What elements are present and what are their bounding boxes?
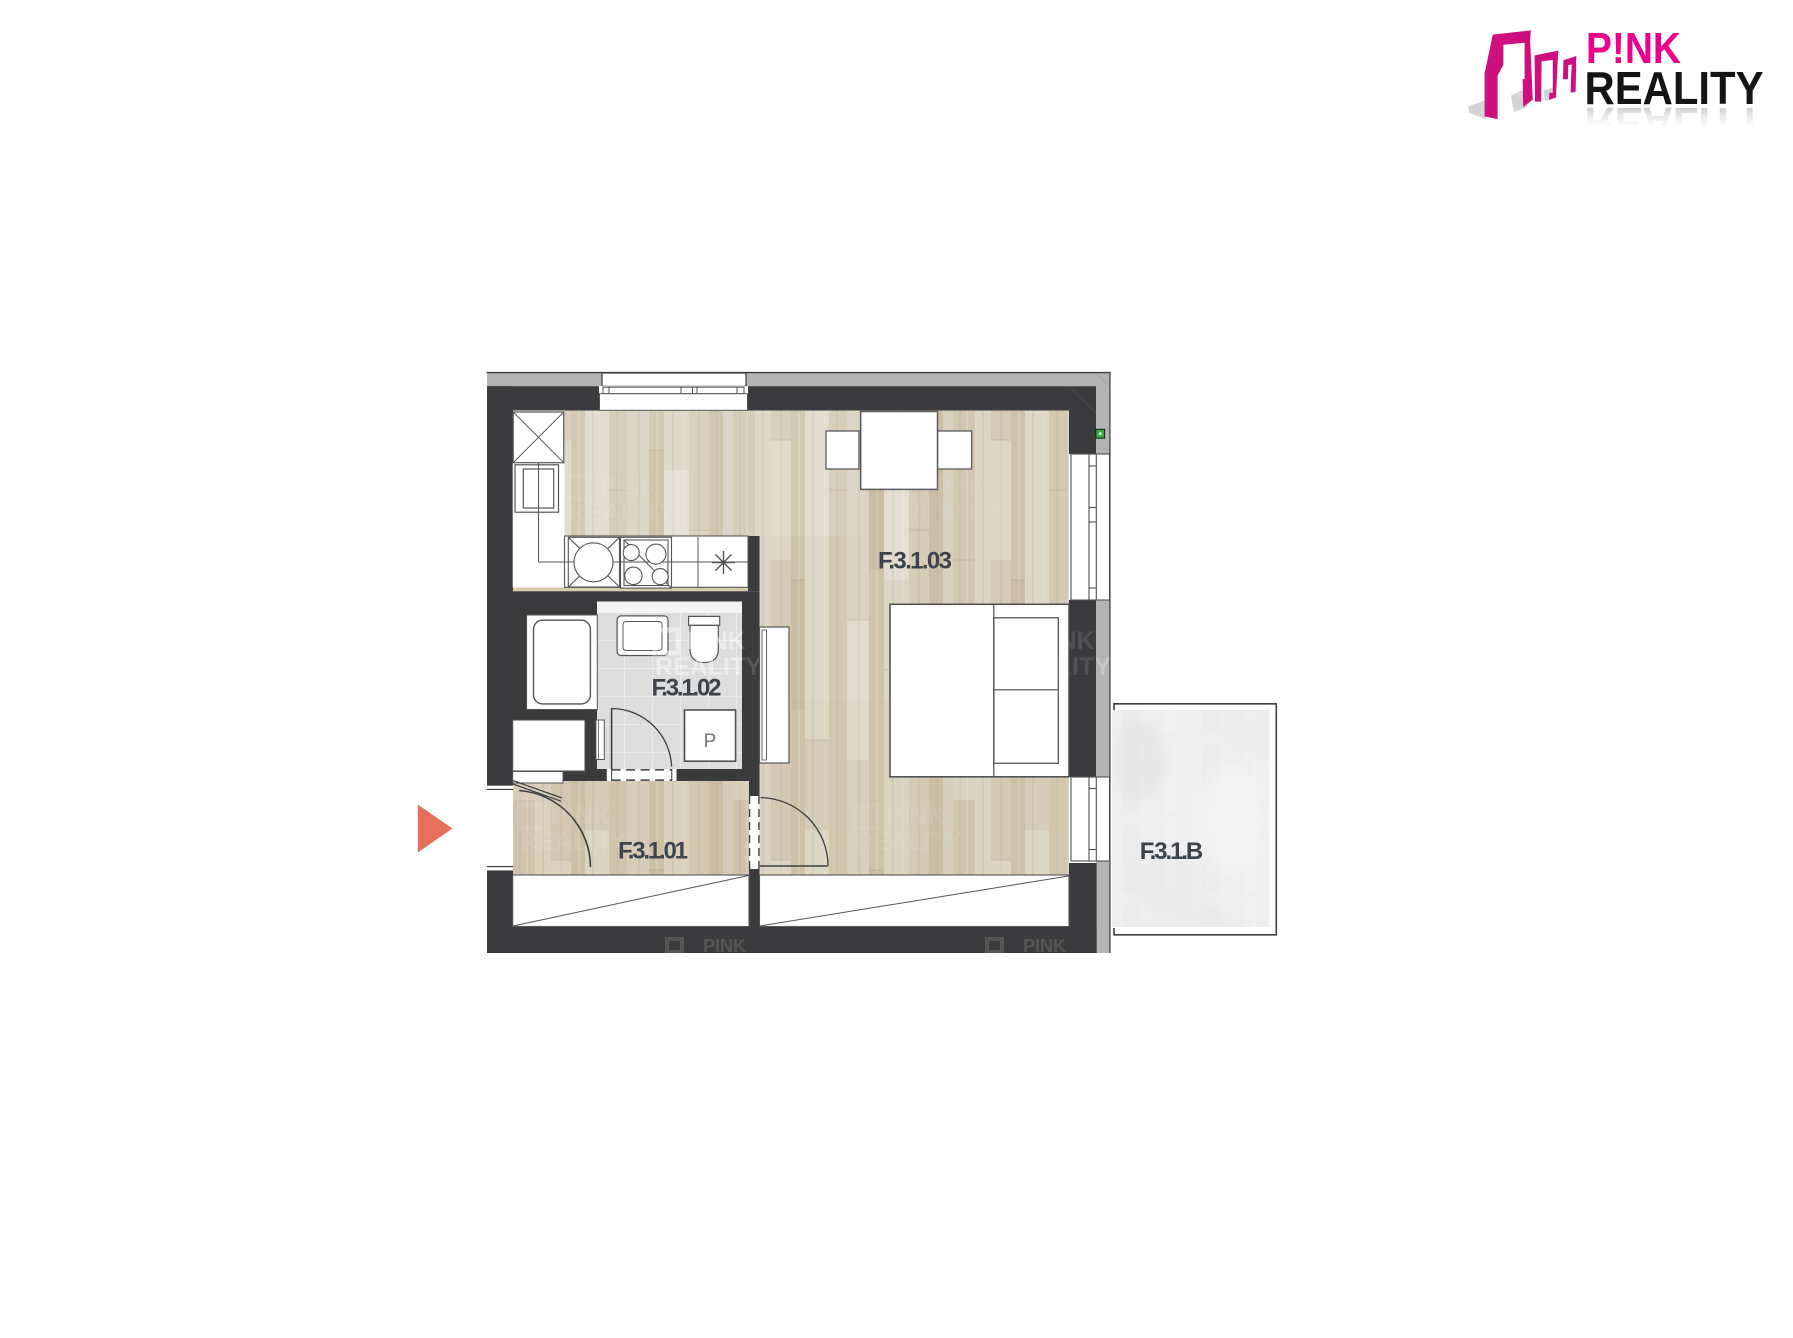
svg-text:PINK: PINK [599,473,659,501]
svg-text:PINK: PINK [886,802,946,830]
svg-text:F.3.1.03: F.3.1.03 [878,548,952,575]
svg-text:PINK: PINK [934,473,994,501]
svg-text:PINK: PINK [686,627,746,655]
svg-text:PINK: PINK [1023,936,1066,956]
svg-text:F.3.1.01: F.3.1.01 [618,838,688,865]
svg-text:REALITY: REALITY [520,828,627,856]
svg-text:F.3.1.B: F.3.1.B [1140,838,1204,865]
svg-text:PINK: PINK [551,802,611,830]
svg-text:PINK: PINK [703,936,746,956]
svg-text:REALITY: REALITY [903,499,1010,527]
svg-text:REALITY: REALITY [568,499,675,527]
svg-text:REALITY: REALITY [855,828,962,856]
svg-text:REALITY: REALITY [1585,62,1764,114]
svg-text:P: P [704,731,717,752]
